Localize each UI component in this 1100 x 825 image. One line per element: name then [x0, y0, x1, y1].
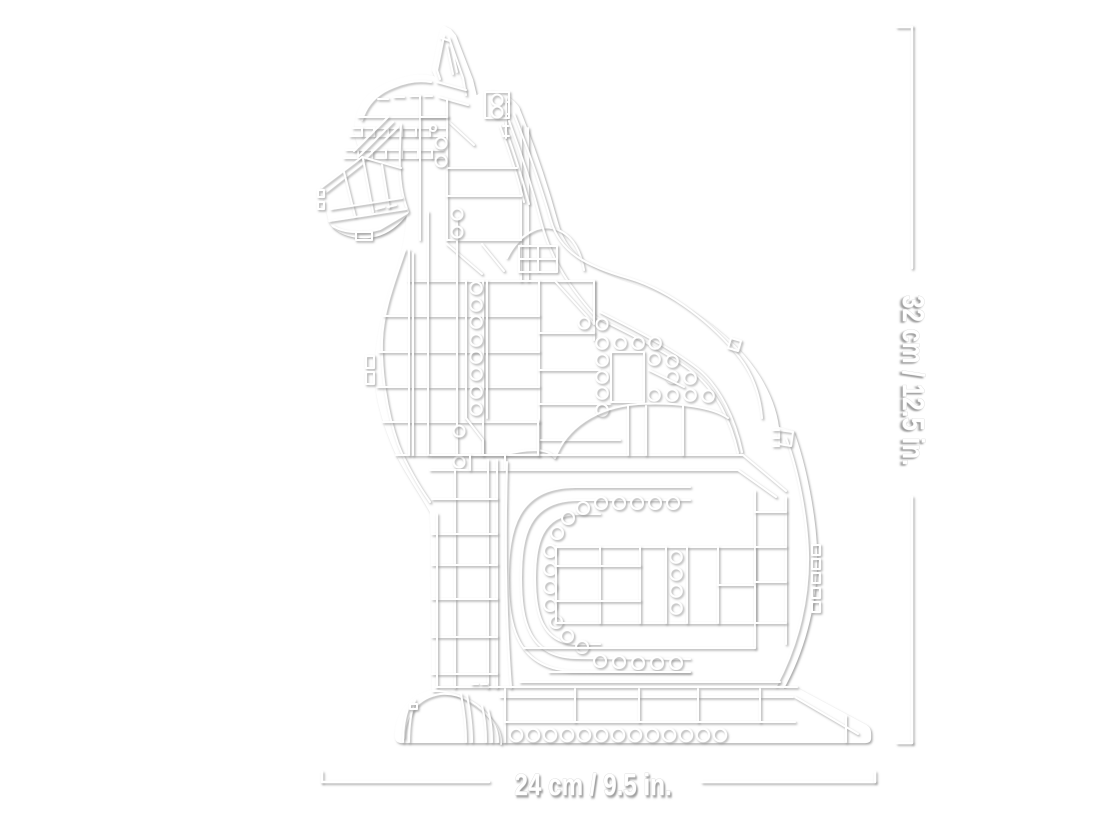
svg-text:24 cm / 9.5 in.: 24 cm / 9.5 in. — [514, 767, 671, 802]
svg-text:32 cm / 12.5 in.: 32 cm / 12.5 in. — [896, 295, 931, 466]
